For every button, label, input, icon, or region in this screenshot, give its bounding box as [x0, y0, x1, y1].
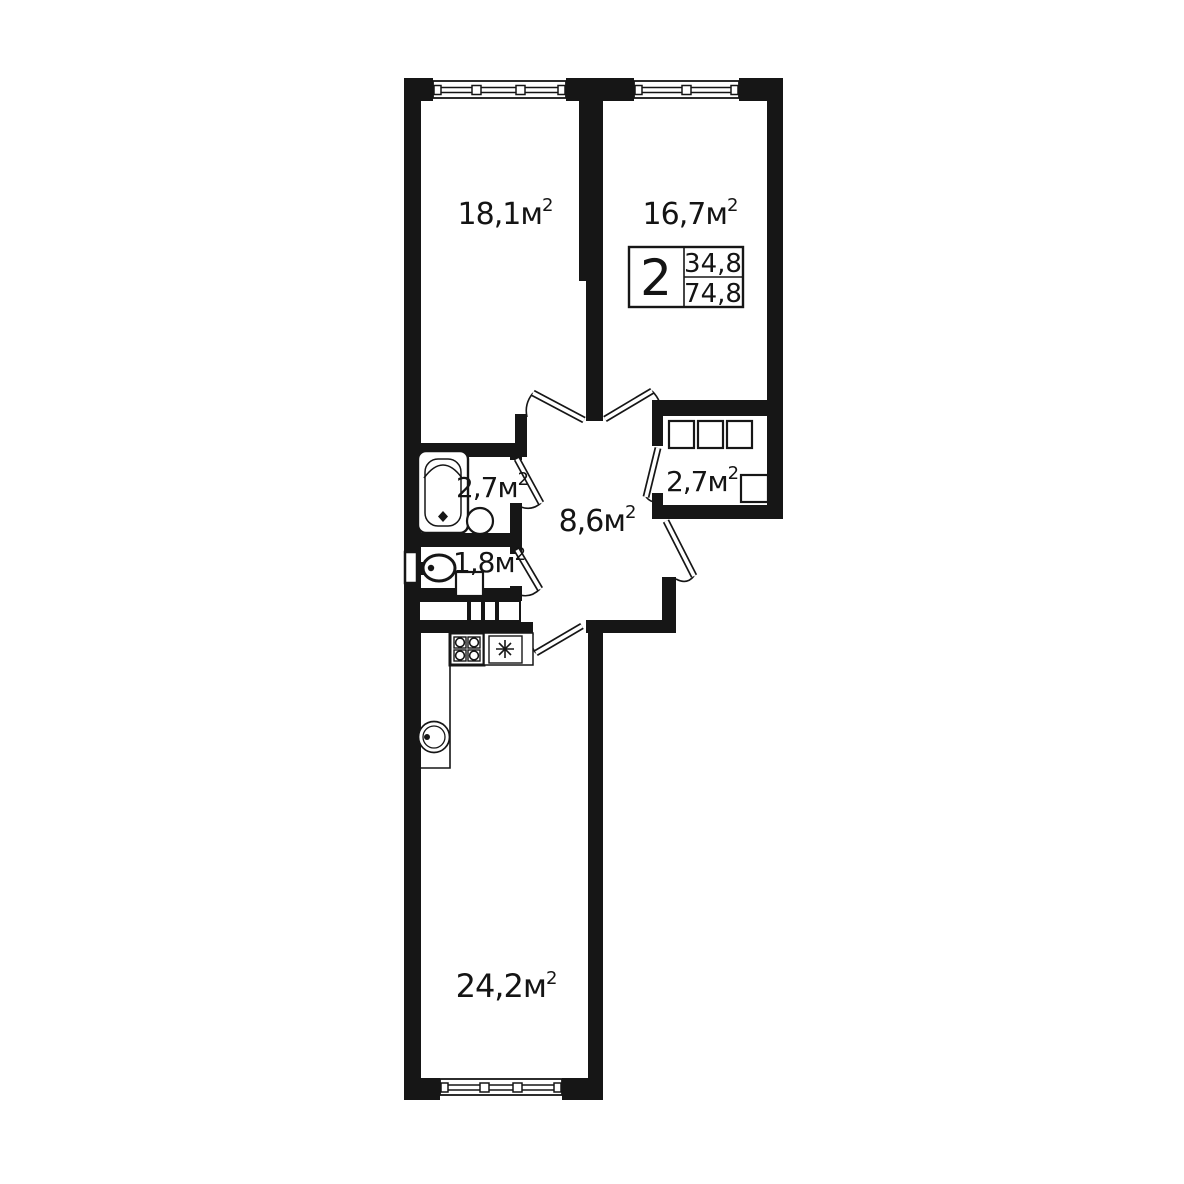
room-label-bedroom-1: 18,1м2 — [458, 195, 553, 232]
window-top-right-icon — [634, 81, 739, 98]
floor-plan: 18,1м2 16,7м2 2,7м2 2,7м2 8,6м2 1,8м2 24… — [0, 0, 1184, 1184]
room-label-wc: 1,8м2 — [453, 544, 525, 579]
toilet-icon — [405, 552, 455, 583]
kitchen-sink-icon — [484, 633, 533, 665]
duct-shaft-icon — [419, 601, 520, 621]
entrance-door — [666, 521, 694, 581]
room-label-wardrobe: 2,7м2 — [666, 463, 738, 498]
kitchen-door — [532, 626, 582, 653]
room-label-bathroom: 2,7м2 — [456, 469, 528, 504]
info-badge: 2 34,8 74,8 — [629, 247, 743, 309]
room-label-bedroom-2: 16,7м2 — [643, 195, 738, 232]
washer-drum-icon — [419, 722, 450, 753]
badge-upper-value: 34,8 — [684, 249, 742, 279]
bedroom-1-door — [526, 393, 584, 420]
room-label-hallway: 8,6м2 — [559, 502, 636, 539]
badge-lower-value: 74,8 — [684, 279, 742, 309]
room-label-kitchen-living: 24,2м2 — [456, 967, 557, 1005]
badge-rooms-count: 2 — [640, 249, 672, 307]
window-bottom-icon — [440, 1079, 562, 1095]
floor-plan-canvas: 18,1м2 16,7м2 2,7м2 2,7м2 8,6м2 1,8м2 24… — [0, 0, 1184, 1184]
stove-icon — [450, 633, 484, 665]
window-top-left-icon — [433, 81, 566, 98]
